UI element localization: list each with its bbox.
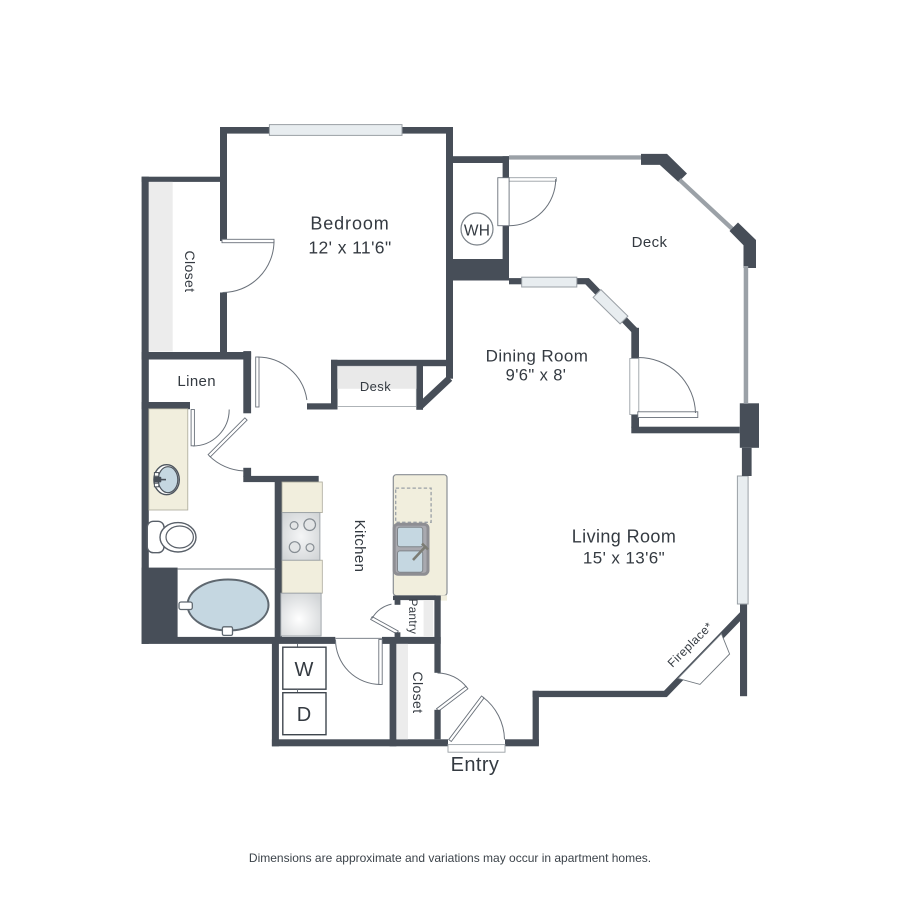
svg-text:Bedroom: Bedroom [310, 214, 389, 234]
svg-text:Dining Room: Dining Room [486, 347, 589, 366]
svg-text:Living Room: Living Room [572, 527, 676, 547]
svg-text:12' x 11'6": 12' x 11'6" [308, 238, 391, 258]
svg-text:Desk: Desk [360, 379, 391, 394]
svg-text:9'6" x 8': 9'6" x 8' [506, 367, 567, 385]
svg-text:15' x 13'6": 15' x 13'6" [583, 549, 665, 568]
svg-text:W: W [295, 659, 314, 681]
svg-text:Pantry: Pantry [406, 599, 418, 635]
svg-text:Deck: Deck [632, 234, 668, 251]
svg-text:WH: WH [464, 222, 490, 239]
svg-text:Linen: Linen [177, 373, 216, 390]
svg-text:Dimensions are approximate and: Dimensions are approximate and variation… [249, 851, 651, 865]
svg-text:Kitchen: Kitchen [351, 520, 368, 573]
svg-text:D: D [297, 704, 311, 726]
svg-text:Entry: Entry [451, 754, 500, 776]
svg-text:Closet: Closet [410, 671, 426, 713]
svg-text:Closet: Closet [182, 250, 198, 292]
